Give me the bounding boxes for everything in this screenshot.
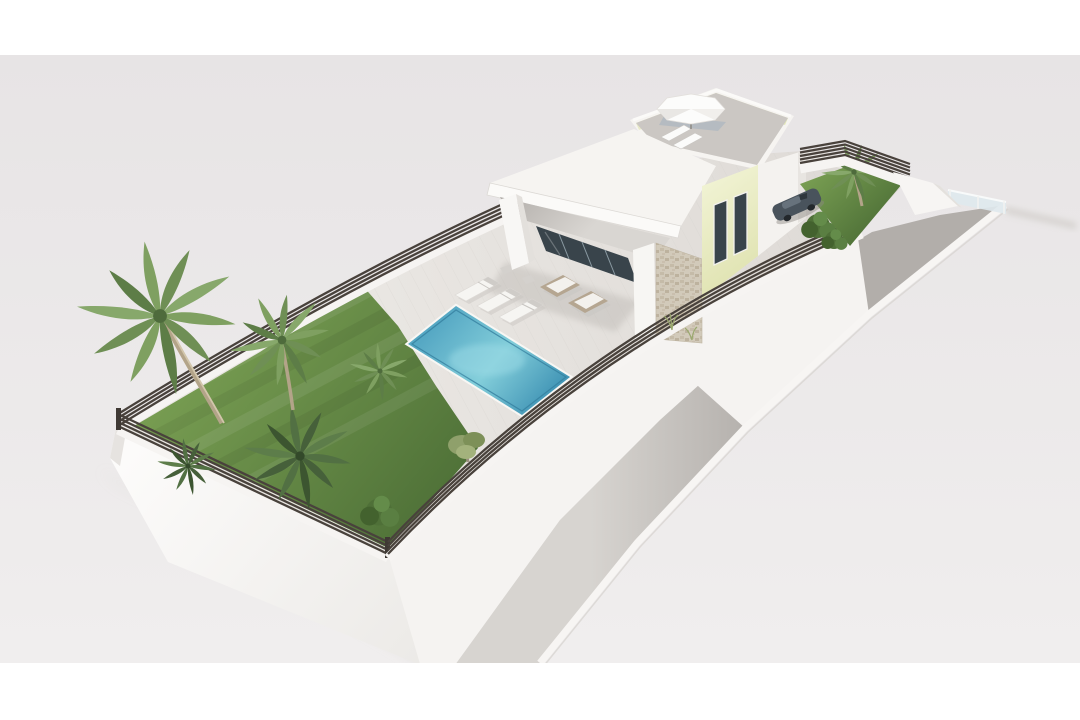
- pool-caustic-highlight: [449, 344, 525, 376]
- frame-top: [0, 0, 1080, 55]
- render-canvas: [0, 0, 1080, 720]
- fence-corner-post: [116, 408, 121, 430]
- villa-render: [0, 0, 1080, 720]
- bulkhead-window: [714, 200, 727, 265]
- frame-bottom: [0, 663, 1080, 720]
- bulkhead-window: [734, 192, 747, 255]
